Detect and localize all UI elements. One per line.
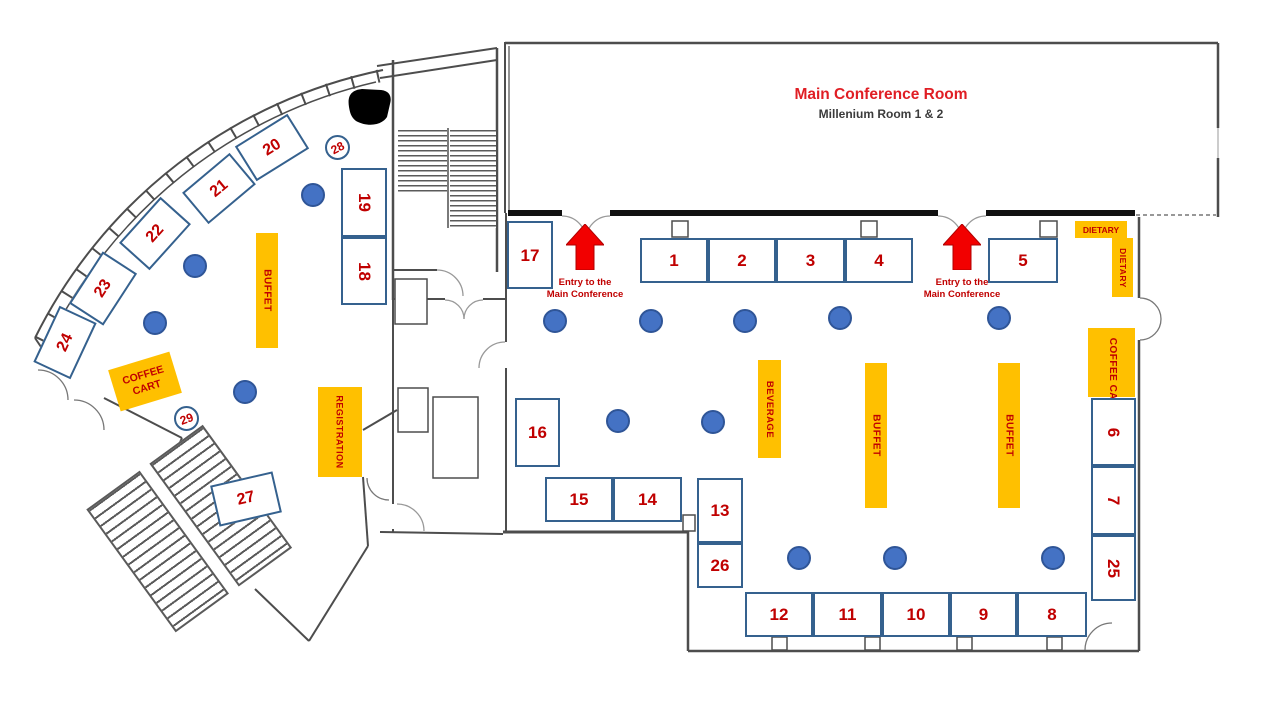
label-registration: REGISTRATION (318, 387, 362, 477)
label-buffet-mid: BUFFET (865, 363, 887, 508)
booth-4: 4 (845, 238, 913, 283)
round-table (639, 309, 663, 333)
booth-14: 14 (613, 477, 682, 522)
booth-7: 7 (1091, 466, 1136, 535)
booth-13: 13 (697, 478, 743, 543)
booth-1: 1 (640, 238, 708, 283)
label-coffee-cart-right: COFFEE CART (1088, 328, 1135, 397)
booth-29: 29 (174, 406, 199, 431)
round-table (733, 309, 757, 333)
round-table (787, 546, 811, 570)
booth-26: 26 (697, 543, 743, 588)
entry-arrow-icon (566, 224, 604, 275)
booth-16: 16 (515, 398, 560, 467)
booth-8: 8 (1017, 592, 1087, 637)
booth-11: 11 (813, 592, 882, 637)
booth-18: 18 (341, 237, 387, 305)
label-beverage: BEVERAGE (758, 360, 781, 458)
booth-10: 10 (882, 592, 950, 637)
label-dietary-h: DIETARY (1075, 221, 1127, 238)
round-table (701, 410, 725, 434)
booth-15: 15 (545, 477, 613, 522)
room-title-block: Main Conference Room Millenium Room 1 & … (756, 86, 1006, 121)
floorplan-canvas: Main Conference Room Millenium Room 1 & … (0, 0, 1280, 720)
round-table (987, 306, 1011, 330)
page-title: Main Conference Room (756, 86, 1006, 104)
label-buffet-right: BUFFET (998, 363, 1020, 508)
round-table (1041, 546, 1065, 570)
round-table (606, 409, 630, 433)
label-dietary-v: DIETARY (1112, 238, 1133, 297)
round-table (883, 546, 907, 570)
round-table (301, 183, 325, 207)
stairs-top (450, 130, 496, 228)
booth-3: 3 (776, 238, 845, 283)
round-table (183, 254, 207, 278)
booth-25: 25 (1091, 535, 1136, 601)
label-buffet-left: BUFFET (256, 233, 278, 348)
booth-28: 28 (325, 135, 350, 160)
booth-6: 6 (1091, 398, 1136, 466)
page-subtitle: Millenium Room 1 & 2 (756, 107, 1006, 121)
round-table (828, 306, 852, 330)
booth-5: 5 (988, 238, 1058, 283)
round-table (233, 380, 257, 404)
round-table (143, 311, 167, 335)
booth-9: 9 (950, 592, 1017, 637)
stairs-top (398, 130, 447, 194)
booth-17: 17 (507, 221, 553, 289)
booth-2: 2 (708, 238, 776, 283)
round-table (543, 309, 567, 333)
entry-arrow-icon (943, 224, 981, 275)
booth-19: 19 (341, 168, 387, 237)
piano-icon (349, 89, 391, 125)
booth-12: 12 (745, 592, 813, 637)
